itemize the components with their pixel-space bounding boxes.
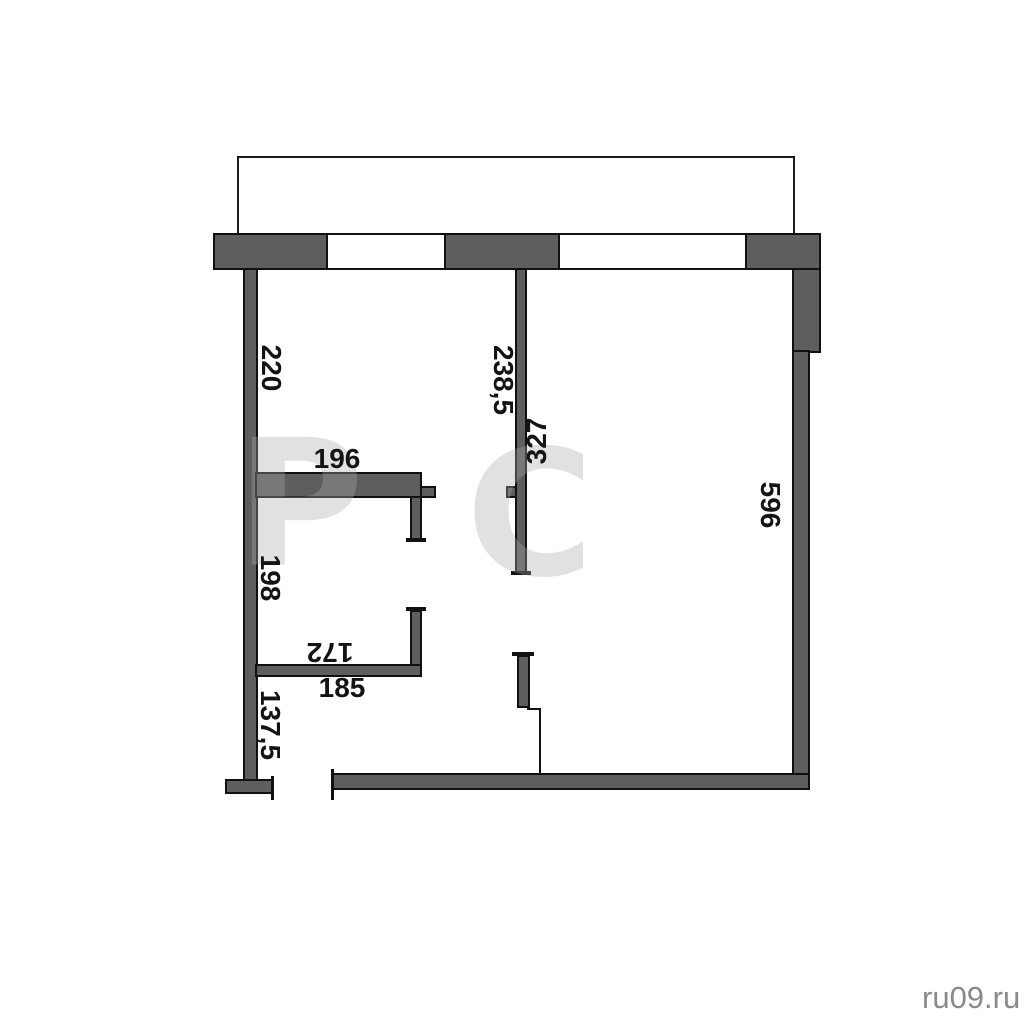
- step-line-vertical: [539, 708, 541, 775]
- top-wall-segment-center: [444, 233, 560, 270]
- window-2: [558, 233, 747, 270]
- hall-door-tab: [420, 486, 436, 498]
- dimension-label-238-5: 238,5: [487, 345, 519, 415]
- dimension-label-220: 220: [255, 345, 287, 392]
- hall-door-cap: [406, 538, 426, 542]
- top-wall-segment-right: [745, 233, 821, 270]
- top-wall-segment-left: [213, 233, 328, 270]
- dimension-label-137-5: 137,5: [254, 690, 286, 760]
- hall-wall-return: [410, 496, 422, 540]
- window-1: [326, 233, 446, 270]
- entrance-left-jamb: [271, 776, 274, 800]
- right-wall-lower: [792, 350, 810, 778]
- left-wall-foot: [225, 779, 273, 794]
- closet-door-cap: [406, 607, 426, 611]
- site-watermark: ru09.ru: [922, 980, 1020, 1016]
- balcony-outline: [237, 156, 795, 235]
- dimension-label-596: 596: [754, 482, 786, 529]
- bottom-wall: [332, 773, 810, 790]
- dimension-label-185: 185: [319, 672, 366, 704]
- dimension-label-198: 198: [254, 555, 286, 602]
- floor-plan: 220 196 238,5 327 596 198 172 185 137,5 …: [0, 0, 1024, 1024]
- right-wall-upper: [792, 268, 821, 353]
- entrance-right-jamb: [331, 769, 334, 800]
- dimension-label-327: 327: [521, 418, 553, 465]
- stub-wall-cap: [512, 652, 534, 656]
- stub-wall: [517, 655, 530, 708]
- dimension-label-172: 172: [307, 636, 354, 668]
- dimension-label-196: 196: [314, 443, 361, 475]
